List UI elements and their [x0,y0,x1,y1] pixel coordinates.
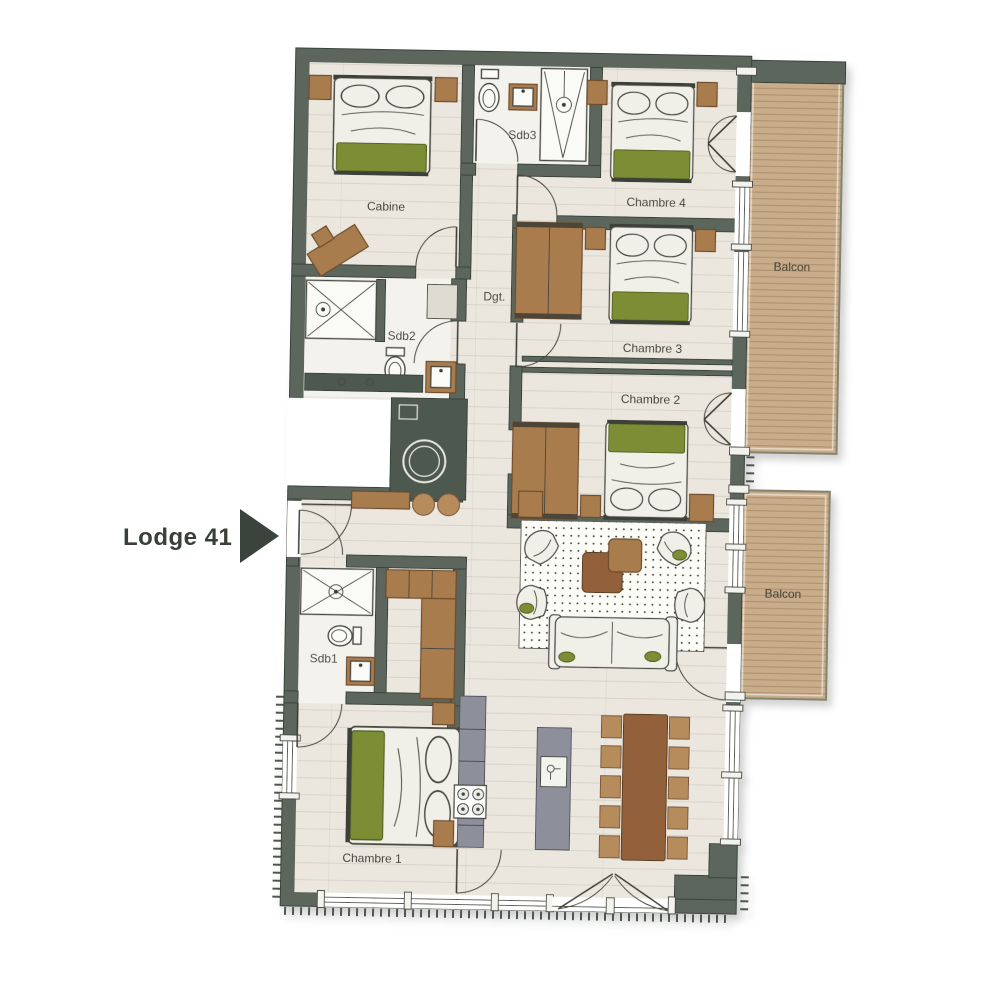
wardrobe [515,222,583,319]
dining-chair [668,807,688,829]
dining-table [621,714,668,861]
dining-chair [667,837,687,859]
sink-icon [509,84,537,111]
page-title: Lodge 41 [123,524,232,551]
dining-chair [669,717,689,739]
nightstand [309,75,331,99]
dining-area [599,714,690,862]
armchair [674,588,705,623]
nightstand [695,229,715,251]
kitchen-island [535,727,571,850]
dining-chair [599,836,619,858]
nightstand [580,495,600,517]
dining-chair [669,747,689,769]
dining-chair [600,776,620,798]
room-label-chambre2: Chambre 2 [621,392,681,407]
dining-chair [601,746,621,768]
shower-icon [540,68,588,161]
bench [351,491,409,509]
floor-plan: Balcon Balcon [276,48,846,921]
shower-icon [301,568,374,615]
toilet-icon [328,626,361,647]
side-table [518,491,542,517]
nightstand [585,227,605,249]
cabinet [433,821,453,847]
stool [412,493,434,515]
room-label-balcon-south: Balcon [764,587,801,602]
room-label-cabine: Cabine [367,199,406,214]
room-label-sdb3: Sdb3 [508,128,537,143]
nightstand [435,77,457,101]
dining-chair [668,777,688,799]
plant-icon [673,550,687,560]
room-label-chambre3: Chambre 3 [623,341,683,356]
double-bed-icon [608,224,694,326]
side-table [689,494,713,521]
dining-chair [600,806,620,828]
nightstand [587,80,607,104]
stove-icon [454,785,487,819]
room-label-sdb2: Sdb2 [387,329,416,344]
room-label-sdb1: Sdb1 [310,651,339,666]
room-label-chambre1: Chambre 1 [342,851,402,866]
exterior-void [286,398,392,491]
stool [437,494,459,516]
sink-icon [426,361,457,393]
toilet-icon [479,69,500,111]
cabinet [427,284,458,319]
laundry-closet [390,398,468,500]
room-label-balcon-north: Balcon [773,260,810,275]
nightstand [697,82,717,106]
vanity-counter [305,373,423,392]
floor-plan-canvas: Balcon Balcon [0,0,1000,1000]
sink-icon [346,657,375,686]
plan-title: Lodge 41 [123,509,279,563]
shower-icon [306,280,377,339]
pointer-arrow-icon [240,509,279,563]
sofa [549,615,678,671]
dining-chair [601,716,621,738]
floor-plan-page: Balcon Balcon [0,0,1000,1000]
balcony-north: Balcon [743,60,846,454]
balcony-south: Balcon [738,490,830,700]
double-bed-icon [332,75,433,177]
armchair [516,585,547,620]
room-label-chambre4: Chambre 4 [626,195,686,210]
plant-icon [520,603,534,613]
room-label-dgt: Dgt. [483,289,505,303]
sink-icon [540,757,567,787]
double-bed-icon [603,420,689,522]
double-bed-icon [609,82,695,184]
nightstand [433,703,455,725]
balcony-parapet [751,60,845,84]
